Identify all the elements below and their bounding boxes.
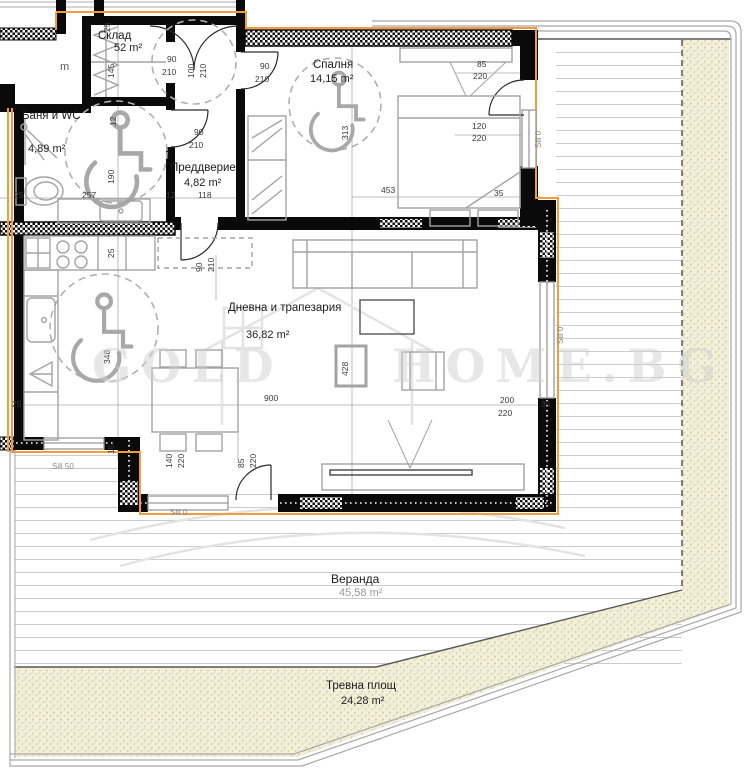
room-area-entry: 4,82 m² — [184, 178, 221, 188]
dim-label: 12 — [166, 190, 175, 200]
dim-label: 220 — [472, 133, 486, 143]
dim-label: 900 — [264, 393, 278, 403]
dim-label: 210 — [198, 64, 208, 78]
dim-label: 100 — [186, 64, 196, 78]
room-label-entry: Преддверие — [170, 162, 236, 174]
room-label-bedroom: Спалня — [313, 59, 353, 71]
floor-plan: Склад 52 m² Баня и WC 4,89 m² Преддверие… — [0, 0, 748, 769]
sill-label: Sill 50 — [52, 462, 74, 472]
room-area-veranda: 45,58 m² — [339, 588, 382, 598]
dim-label: 145 — [106, 64, 116, 78]
room-area-bedroom: 14,15 m² — [310, 74, 353, 84]
room-area-bath: 4,89 m² — [28, 144, 65, 154]
dim-label: 85 — [477, 59, 486, 69]
dim-label: 210 — [189, 140, 203, 150]
dim-label: 90 — [167, 54, 176, 64]
dim-label: 210 — [206, 258, 216, 272]
dim-label: 90 — [194, 127, 203, 137]
dim-label: 220 — [473, 71, 487, 81]
dim-label: 25 — [102, 23, 112, 32]
room-label-bath: Баня и WC — [22, 110, 74, 122]
dim-label: 210 — [162, 67, 176, 77]
dim-label: 12 — [108, 117, 118, 126]
dim-label: 428 — [340, 362, 350, 376]
dim-label: 90 — [194, 263, 204, 272]
watermark-text-right: HOME.BG — [392, 342, 727, 390]
dim-label: 220 — [248, 454, 258, 468]
dim-label: 120 — [472, 121, 486, 131]
dim-label: 118 — [198, 190, 212, 200]
room-label-living: Дневна и трапезария — [228, 302, 314, 314]
room-label-lawn: Тревна площ — [326, 680, 396, 692]
dim-label: 35 — [541, 399, 550, 409]
dim-label: 453 — [381, 185, 395, 195]
room-label-veranda: Веранда — [331, 573, 379, 585]
room-area-storage: 52 m² — [114, 43, 142, 53]
dim-label: 85 — [236, 459, 246, 468]
room-area-lawn: 24,28 m² — [341, 696, 384, 706]
dim-label: 210 — [255, 74, 269, 84]
sill-label: Sill 0 — [170, 508, 187, 518]
partial-label: m — [60, 62, 69, 72]
watermark-text-left: GOLD — [92, 342, 284, 390]
dim-label: 257 — [82, 190, 96, 200]
dim-label: 200 — [500, 395, 514, 405]
dim-label: 190 — [106, 170, 116, 184]
dim-label: 25 — [12, 399, 21, 409]
dim-label: 140 — [164, 454, 174, 468]
dim-label: 35 — [494, 188, 503, 198]
dim-label: 90 — [260, 61, 269, 71]
sill-label: Sill 0 — [534, 131, 544, 148]
dim-label: 220 — [176, 454, 186, 468]
dim-label: 15 — [106, 445, 116, 454]
dim-label: 25 — [106, 249, 116, 258]
dim-label: 220 — [498, 408, 512, 418]
dim-label: 25 — [14, 190, 23, 200]
dim-label: 313 — [340, 126, 350, 140]
